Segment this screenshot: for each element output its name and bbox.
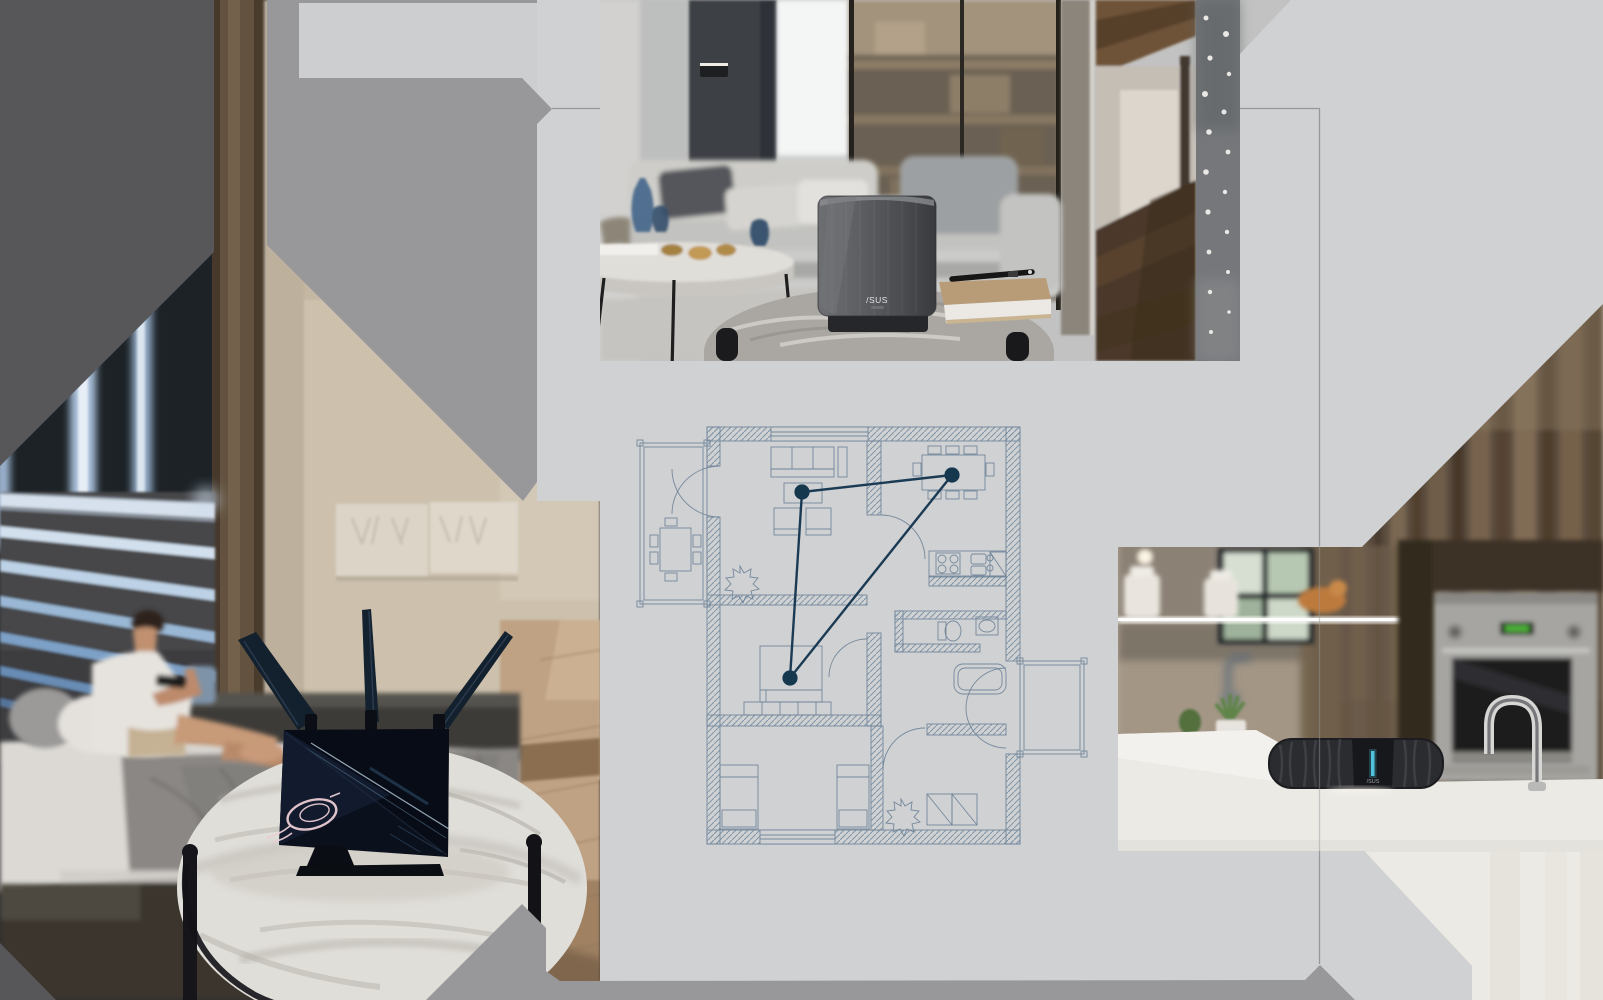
svg-text:/SUS: /SUS — [1367, 779, 1380, 785]
svg-text:/SUS: /SUS — [866, 295, 888, 305]
